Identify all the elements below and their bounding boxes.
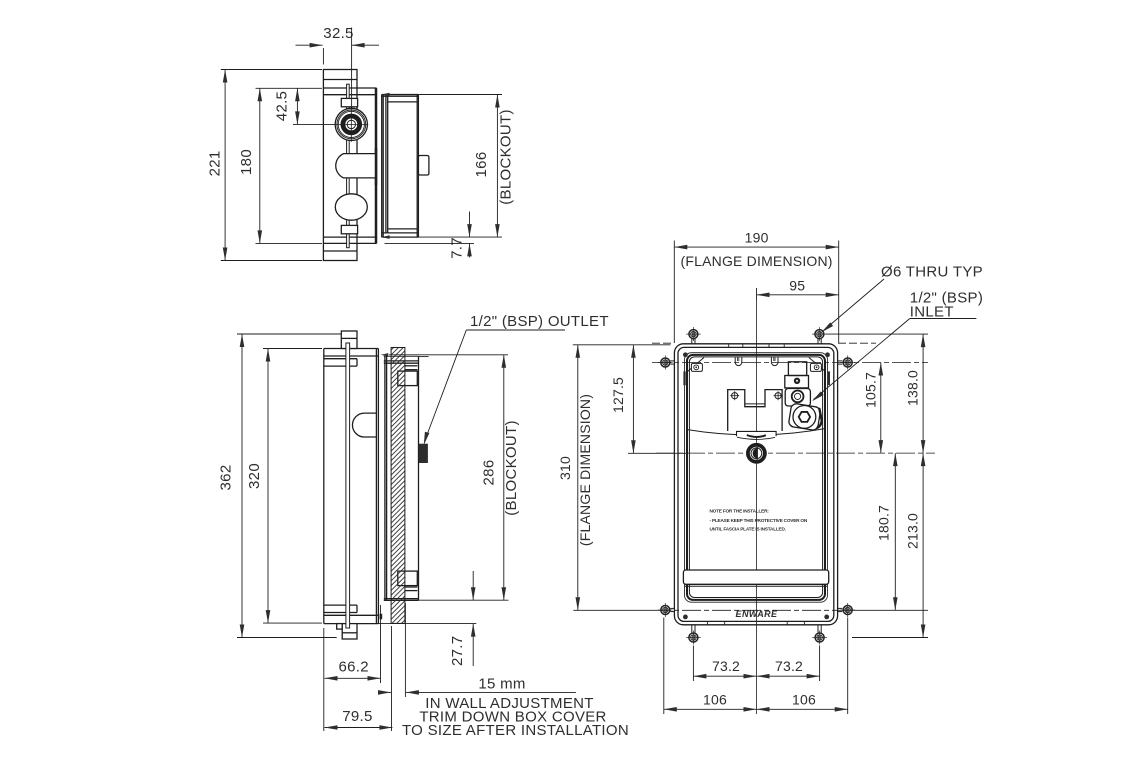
svg-text:(BLOCKOUT): (BLOCKOUT) (503, 420, 520, 516)
svg-text:ENWARE: ENWARE (736, 609, 778, 619)
svg-text:(FLANGE DIMENSION): (FLANGE DIMENSION) (577, 394, 593, 546)
svg-text:286: 286 (481, 460, 498, 486)
svg-text:- PLEASE KEEP THIS PROTECTIVE: - PLEASE KEEP THIS PROTECTIVE COVER ON (710, 518, 808, 523)
svg-text:Ø6 THRU TYP: Ø6 THRU TYP (881, 264, 983, 281)
svg-text:79.5: 79.5 (342, 708, 372, 725)
svg-text:7.7: 7.7 (449, 237, 466, 259)
svg-text:362: 362 (218, 465, 235, 491)
svg-text:(BLOCKOUT): (BLOCKOUT) (498, 109, 515, 205)
svg-text:42.5: 42.5 (274, 91, 291, 121)
svg-text:95: 95 (789, 278, 805, 294)
svg-text:180: 180 (238, 149, 255, 175)
svg-text:127.5: 127.5 (610, 377, 626, 413)
svg-text:66.2: 66.2 (338, 659, 368, 676)
svg-text:180.7: 180.7 (876, 505, 892, 541)
svg-text:105.7: 105.7 (863, 372, 879, 408)
svg-text:138.0: 138.0 (905, 370, 921, 406)
svg-text:15 mm: 15 mm (478, 676, 525, 693)
svg-text:190: 190 (745, 230, 769, 246)
svg-text:106: 106 (792, 692, 816, 708)
svg-text:73.2: 73.2 (775, 658, 803, 674)
svg-text:32.5: 32.5 (323, 25, 353, 42)
svg-text:27.7: 27.7 (449, 636, 466, 666)
svg-text:INLET: INLET (910, 304, 954, 321)
svg-text:166: 166 (473, 152, 490, 178)
svg-text:TO SIZE AFTER INSTALLATION: TO SIZE AFTER INSTALLATION (402, 722, 629, 739)
svg-text:(FLANGE DIMENSION): (FLANGE DIMENSION) (681, 253, 833, 269)
svg-text:310: 310 (557, 456, 573, 480)
svg-text:106: 106 (703, 692, 727, 708)
svg-text:221: 221 (206, 150, 223, 176)
svg-text:73.2: 73.2 (712, 658, 740, 674)
svg-text:213.0: 213.0 (905, 513, 921, 549)
svg-text:320: 320 (246, 463, 263, 489)
svg-text:UNTIL FASCIA PLATE IS INSTALL: UNTIL FASCIA PLATE IS INSTALLED. (710, 527, 786, 532)
svg-text:NOTE FOR THE INSTALLER:: NOTE FOR THE INSTALLER: (710, 509, 770, 514)
svg-text:1/2" (BSP) OUTLET: 1/2" (BSP) OUTLET (470, 313, 609, 330)
